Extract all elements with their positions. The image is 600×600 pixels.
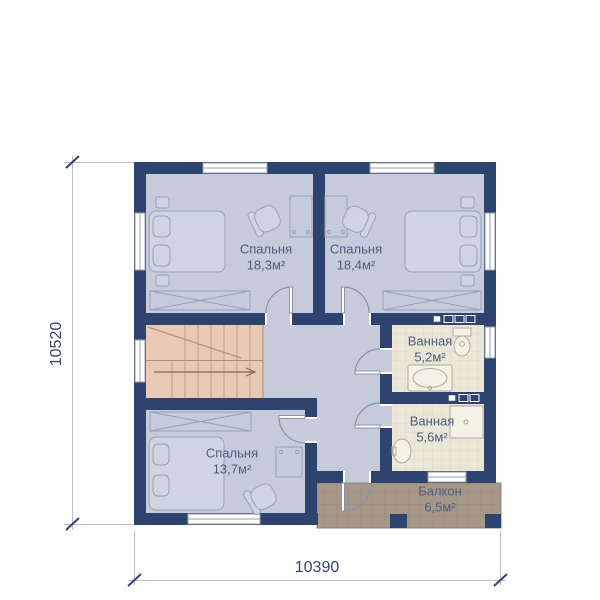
bathtub xyxy=(408,365,452,391)
nightstand xyxy=(461,275,474,286)
vent-shaft-icon xyxy=(448,395,456,402)
wall-right xyxy=(484,162,496,483)
vent-shaft-icon xyxy=(470,395,479,402)
room-label-bedroom-1: Спальня 18,3м² xyxy=(240,241,292,272)
wall-bedroom3-east xyxy=(305,443,317,525)
room-area: 13,7м² xyxy=(206,461,258,477)
vent-shaft-icon xyxy=(455,316,464,323)
room-name: Спальня xyxy=(240,241,292,256)
pillow xyxy=(153,444,169,465)
room-name: Ванная xyxy=(410,413,455,428)
stairs-floor xyxy=(146,325,263,398)
window xyxy=(370,163,434,173)
window xyxy=(135,340,145,382)
floor-plan-page: Спальня 18,3м² Спальня 18,4м² Ванная 5,2… xyxy=(0,0,600,600)
vent-shaft-icon xyxy=(459,395,468,402)
pillow xyxy=(460,245,477,266)
window xyxy=(203,163,267,173)
wall-hall-north xyxy=(292,313,343,325)
room-label-bedroom-3: Спальня 13,7м² xyxy=(206,445,258,476)
room-name: Спальня xyxy=(206,445,258,460)
room-area: 18,4м² xyxy=(330,257,382,273)
window xyxy=(135,213,145,270)
room-name: Балкон xyxy=(418,483,462,498)
nightstand xyxy=(156,197,169,208)
wall-bathrooms-west xyxy=(380,428,392,471)
wall-top xyxy=(134,162,496,174)
balcony-pillar xyxy=(485,514,501,528)
wall-bedroom3-east xyxy=(305,410,317,417)
balcony-pillar xyxy=(390,514,407,528)
vent-shaft-icon xyxy=(433,316,441,323)
room-area: 6,5м² xyxy=(418,499,462,515)
nightstand xyxy=(461,197,474,208)
room-label-bedroom-2: Спальня 18,4м² xyxy=(330,241,382,272)
wall-bedroom3-north xyxy=(134,398,317,410)
room-name: Ванная xyxy=(408,333,453,348)
window xyxy=(428,472,466,482)
nightstand xyxy=(156,275,169,286)
pillow xyxy=(153,216,170,237)
wall-bathrooms-west xyxy=(380,325,392,348)
room-label-balcony: Балкон 6,5м² xyxy=(418,483,462,514)
shower xyxy=(450,406,483,438)
pillow xyxy=(153,245,170,266)
room-label-bathroom-1: Ванная 5,2м² xyxy=(408,333,453,364)
window xyxy=(485,327,495,358)
staircase xyxy=(146,325,263,398)
room-area: 5,2м² xyxy=(408,349,453,365)
room-area: 18,3м² xyxy=(240,257,292,273)
room-area: 5,6м² xyxy=(410,429,455,445)
wall-hall-north xyxy=(146,313,265,325)
window xyxy=(485,213,495,270)
vent-shaft-icon xyxy=(444,316,453,323)
room-name: Спальня xyxy=(330,241,382,256)
dimension-label-height: 10520 xyxy=(48,322,66,367)
wall-hall-south xyxy=(313,471,343,483)
wall-bedroom-divider xyxy=(313,174,325,313)
window xyxy=(188,514,260,524)
dimension-label-width: 10390 xyxy=(295,559,340,577)
pillow xyxy=(460,216,477,237)
pillow xyxy=(153,475,169,496)
vent-shaft-icon xyxy=(466,316,475,323)
toilet xyxy=(453,328,471,356)
floor-plan-canvas xyxy=(0,0,600,600)
room-label-bathroom-2: Ванная 5,6м² xyxy=(410,413,455,444)
